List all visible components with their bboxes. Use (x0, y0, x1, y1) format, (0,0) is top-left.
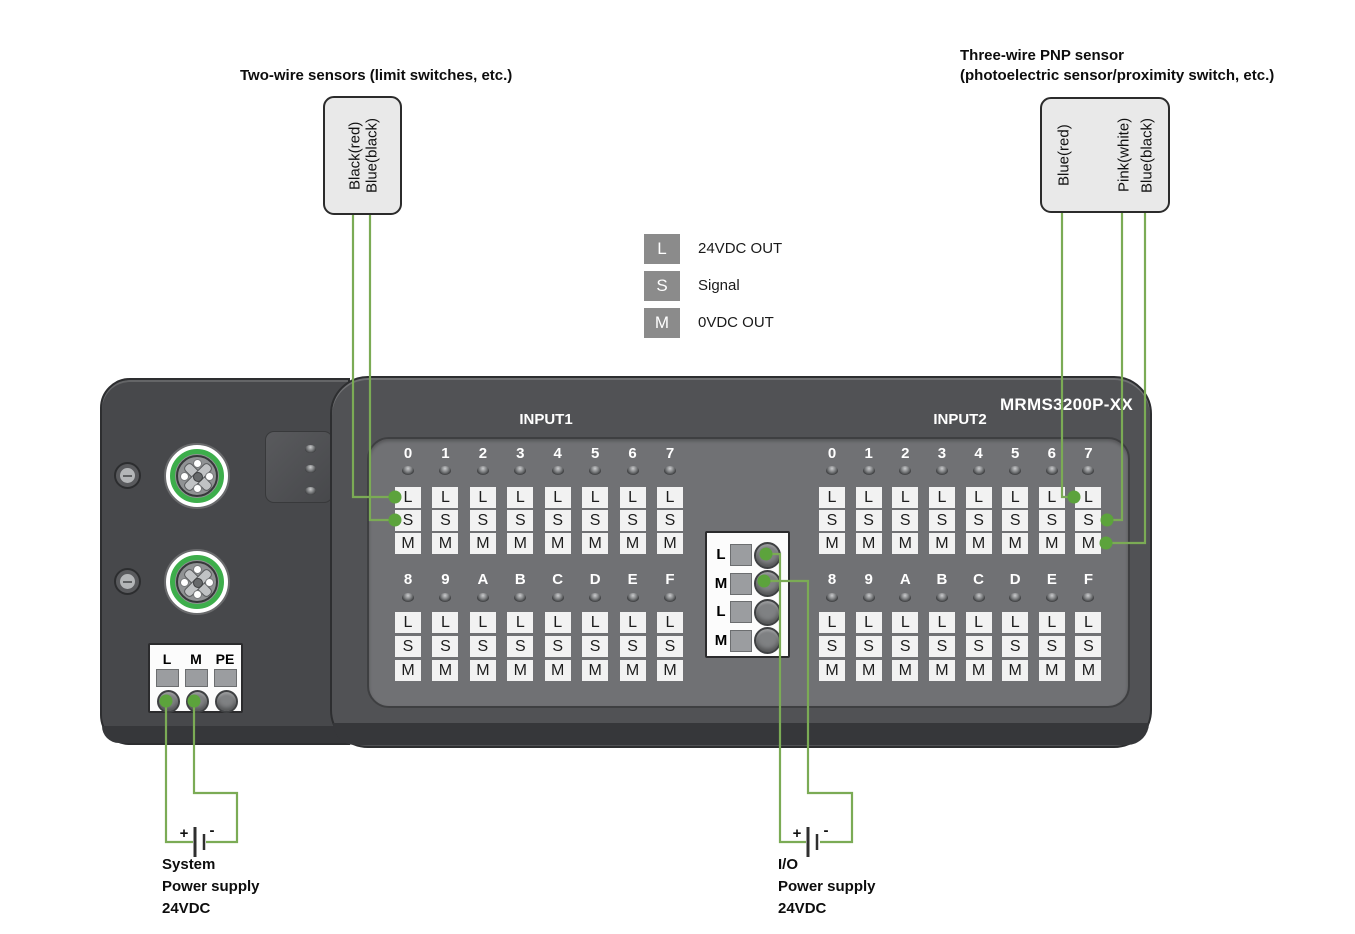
terminal-cell-M: M (657, 533, 683, 554)
terminal-screw (215, 690, 238, 713)
terminal-screw (186, 690, 209, 713)
status-led-icon (305, 465, 316, 473)
channel-led-icon (477, 466, 489, 475)
m12-pin-disc (176, 561, 218, 603)
terminal-cell-M: M (395, 533, 421, 554)
terminal-cell-M: M (470, 660, 496, 681)
terminal-cell-M: M (819, 660, 845, 681)
terminal-cell-L: L (966, 487, 992, 508)
minus-sign-system: - (210, 822, 215, 839)
terminal-cell-L: L (657, 612, 683, 633)
terminal-cell-L: L (395, 612, 421, 633)
status-led-box (265, 431, 333, 503)
terminal-cell-L: L (545, 612, 571, 633)
legend-key-badge: L (644, 234, 680, 264)
channel-number: D (1000, 572, 1030, 588)
terminal-cell-S: S (819, 636, 845, 657)
channel-number: 4 (543, 446, 573, 462)
channel-led-icon (552, 466, 564, 475)
terminal-cell-S: S (1002, 636, 1028, 657)
channel-led-icon (1046, 593, 1058, 602)
terminal-cell-M: M (966, 533, 992, 554)
terminal-cell-S: S (856, 510, 882, 531)
channel-number: A (890, 572, 920, 588)
terminal-cell-S: S (1002, 510, 1028, 531)
status-led-icon (305, 445, 316, 453)
terminal-cell-L: L (620, 612, 646, 633)
terminal-cell-M: M (432, 533, 458, 554)
terminal-cell-S: S (582, 636, 608, 657)
terminal-cell-S: S (395, 636, 421, 657)
legend-key-badge: M (644, 308, 680, 338)
terminal-cell-S: S (620, 510, 646, 531)
terminal-cell-L: L (929, 612, 955, 633)
channel-number: E (1037, 572, 1067, 588)
channel-number: 4 (964, 446, 994, 462)
terminal-cell-M: M (1002, 533, 1028, 554)
terminal-cell-M: M (657, 660, 683, 681)
terminal-cell-M: M (892, 533, 918, 554)
terminal-cell-S: S (929, 636, 955, 657)
m12-pin-hole (205, 472, 214, 481)
screw-slot (123, 475, 132, 478)
m12-pin-hole (180, 578, 189, 587)
terminal-cell-L: L (1002, 487, 1028, 508)
terminal-cell-L: L (470, 612, 496, 633)
m12-pin-hole (193, 590, 202, 599)
terminal-cell-S: S (1039, 636, 1065, 657)
channel-led-icon (936, 593, 948, 602)
system-power-supply-label: System Power supply 24VDC (162, 854, 260, 920)
terminal-cell-L: L (819, 487, 845, 508)
channel-led-icon (863, 593, 875, 602)
terminal-cell-L: L (1039, 612, 1065, 633)
legend-row: L24VDC OUT (644, 234, 844, 264)
legend-key-label: Signal (698, 271, 740, 301)
terminal-cell-L: L (892, 612, 918, 633)
terminal-cell-M: M (856, 660, 882, 681)
terminal-cell-L: L (966, 612, 992, 633)
terminal-cell-L: L (545, 487, 571, 508)
terminal-cell-S: S (657, 636, 683, 657)
plus-sign-io: + (793, 825, 802, 842)
terminal-cell-M: M (929, 660, 955, 681)
channel-number: 2 (890, 446, 920, 462)
terminal-cell-M: M (582, 660, 608, 681)
supply-line: 24VDC (162, 898, 260, 920)
channel-led-icon (826, 593, 838, 602)
channel-number: 6 (618, 446, 648, 462)
channel-number: 7 (655, 446, 685, 462)
io-power-supply-label: I/O Power supply 24VDC (778, 854, 876, 920)
terminal-cell-S: S (1075, 510, 1101, 531)
terminal-cell-S: S (966, 510, 992, 531)
three-wire-title-line1: Three-wire PNP sensor (960, 46, 1274, 66)
channel-number: 5 (580, 446, 610, 462)
power-terminal-label: PE (210, 651, 240, 667)
terminal-screw (754, 542, 781, 569)
terminal-cell-M: M (1039, 533, 1065, 554)
channel-led-icon (973, 593, 985, 602)
terminal-cell-S: S (432, 636, 458, 657)
channel-led-icon (973, 466, 985, 475)
terminal-cell-L: L (507, 487, 533, 508)
channel-number: 1 (854, 446, 884, 462)
terminal-cell-M: M (470, 533, 496, 554)
supply-line: Power supply (778, 876, 876, 898)
two-wire-sensors-title: Two-wire sensors (limit switches, etc.) (240, 66, 512, 86)
terminal-clamp (730, 601, 752, 623)
io-terminal-label: M (711, 575, 731, 592)
terminal-clamp (214, 669, 237, 687)
channel-led-icon (402, 466, 414, 475)
terminal-cell-M: M (819, 533, 845, 554)
channel-led-icon (863, 466, 875, 475)
status-led-icon (305, 487, 316, 495)
m12-pin-hole (193, 565, 202, 574)
terminal-cell-S: S (507, 636, 533, 657)
terminal-cell-L: L (657, 487, 683, 508)
terminal-cell-S: S (545, 636, 571, 657)
terminal-cell-M: M (966, 660, 992, 681)
terminal-clamp (156, 669, 179, 687)
terminal-cell-L: L (470, 487, 496, 508)
terminal-cell-L: L (856, 487, 882, 508)
channel-number: C (543, 572, 573, 588)
terminal-cell-M: M (545, 660, 571, 681)
screw-icon (114, 462, 141, 489)
three-wire-pnp-sensor-title: Three-wire PNP sensor (photoelectric sen… (960, 46, 1274, 86)
legend-key-label: 24VDC OUT (698, 234, 782, 264)
terminal-cell-M: M (545, 533, 571, 554)
terminal-cell-L: L (856, 612, 882, 633)
terminal-cell-M: M (620, 660, 646, 681)
channel-number: 2 (468, 446, 498, 462)
terminal-cell-M: M (432, 660, 458, 681)
power-terminal-label: L (152, 651, 182, 667)
terminal-cell-L: L (1002, 612, 1028, 633)
terminal-cell-S: S (432, 510, 458, 531)
io-terminal-label: L (711, 603, 731, 620)
two-wire-sensor-box: Black(red)Blue(black) (323, 96, 402, 215)
terminal-cell-L: L (582, 487, 608, 508)
terminal-screw (754, 627, 781, 654)
two-wire-pin-label: Blue(black) (362, 98, 382, 213)
channel-led-icon (1046, 466, 1058, 475)
m12-connector-icon (164, 443, 230, 509)
channel-number: 5 (1000, 446, 1030, 462)
channel-number: 9 (854, 572, 884, 588)
input-group-label: INPUT1 (486, 411, 606, 428)
screw-slot (123, 581, 132, 584)
channel-number: 7 (1073, 446, 1103, 462)
screw-icon (114, 568, 141, 595)
legend-row: M0VDC OUT (644, 308, 844, 338)
channel-number: 6 (1037, 446, 1067, 462)
terminal-screw (754, 570, 781, 597)
terminal-cell-M: M (620, 533, 646, 554)
terminal-cell-L: L (620, 487, 646, 508)
channel-led-icon (826, 466, 838, 475)
channel-number: 8 (393, 572, 423, 588)
terminal-cell-M: M (856, 533, 882, 554)
terminal-cell-S: S (1039, 510, 1065, 531)
channel-led-icon (664, 466, 676, 475)
channel-number: F (655, 572, 685, 588)
io-terminal-label: M (711, 632, 731, 649)
channel-number: 3 (927, 446, 957, 462)
terminal-cell-L: L (395, 487, 421, 508)
m12-pin-hole (193, 459, 202, 468)
terminal-cell-M: M (1002, 660, 1028, 681)
minus-sign-io: - (824, 822, 829, 839)
system-power-terminal: LMPE (148, 643, 243, 713)
device-body-bottom-edge (333, 723, 1149, 745)
terminal-cell-S: S (582, 510, 608, 531)
wiring-diagram: Two-wire sensors (limit switches, etc.) … (0, 0, 1355, 934)
channel-led-icon (936, 466, 948, 475)
terminal-cell-L: L (892, 487, 918, 508)
terminal-screw (754, 599, 781, 626)
terminal-clamp (730, 630, 752, 652)
channel-number: B (927, 572, 957, 588)
terminal-cell-S: S (470, 510, 496, 531)
terminal-cell-M: M (1075, 533, 1101, 554)
channel-number: 1 (430, 446, 460, 462)
channel-number: B (505, 572, 535, 588)
terminal-cell-S: S (892, 636, 918, 657)
channel-number: 3 (505, 446, 535, 462)
channel-number: 0 (817, 446, 847, 462)
terminal-cell-L: L (432, 487, 458, 508)
legend-key-label: 0VDC OUT (698, 308, 774, 338)
supply-line: Power supply (162, 876, 260, 898)
m12-connector-icon (164, 549, 230, 615)
terminal-cell-S: S (856, 636, 882, 657)
terminal-cell-S: S (892, 510, 918, 531)
channel-led-icon (627, 593, 639, 602)
terminal-cell-S: S (395, 510, 421, 531)
terminal-cell-M: M (929, 533, 955, 554)
three-wire-sensor-box: Blue(red)Pink(white)Blue(black) (1040, 97, 1170, 213)
three-wire-pin-label: Pink(white) (1114, 99, 1134, 211)
supply-line: 24VDC (778, 898, 876, 920)
terminal-cell-S: S (545, 510, 571, 531)
m12-center-hole (193, 578, 203, 588)
terminal-cell-M: M (582, 533, 608, 554)
terminal-cell-L: L (432, 612, 458, 633)
channel-led-icon (664, 593, 676, 602)
supply-line: System (162, 854, 260, 876)
channel-number: 8 (817, 572, 847, 588)
terminal-clamp (730, 573, 752, 595)
terminal-cell-M: M (507, 660, 533, 681)
m12-pin-hole (193, 484, 202, 493)
terminal-cell-L: L (929, 487, 955, 508)
terminal-cell-S: S (470, 636, 496, 657)
channel-number: C (964, 572, 994, 588)
terminal-cell-M: M (892, 660, 918, 681)
channel-number: 0 (393, 446, 423, 462)
terminal-cell-S: S (966, 636, 992, 657)
three-wire-pin-label: Blue(black) (1137, 99, 1157, 211)
legend-key-badge: S (644, 271, 680, 301)
channel-number: E (618, 572, 648, 588)
channel-number: 9 (430, 572, 460, 588)
channel-number: F (1073, 572, 1103, 588)
terminal-cell-S: S (657, 510, 683, 531)
terminal-cell-S: S (620, 636, 646, 657)
terminal-clamp (185, 669, 208, 687)
legend-row: SSignal (644, 271, 844, 301)
channel-number: D (580, 572, 610, 588)
power-terminal-label: M (181, 651, 211, 667)
terminal-cell-M: M (395, 660, 421, 681)
plus-sign-system: + (180, 825, 189, 842)
terminal-screw (157, 690, 180, 713)
m12-pin-hole (180, 472, 189, 481)
terminal-cell-M: M (1075, 660, 1101, 681)
terminal-cell-S: S (1075, 636, 1101, 657)
m12-pin-hole (205, 578, 214, 587)
terminal-cell-M: M (507, 533, 533, 554)
terminal-cell-S: S (819, 510, 845, 531)
terminal-cell-L: L (1075, 487, 1101, 508)
input-group-label: INPUT2 (900, 411, 1020, 428)
terminal-cell-L: L (507, 612, 533, 633)
channel-led-icon (477, 593, 489, 602)
io-terminal-label: L (711, 546, 731, 563)
three-wire-pin-label: Blue(red) (1054, 99, 1074, 211)
terminal-cell-S: S (929, 510, 955, 531)
supply-line: I/O (778, 854, 876, 876)
three-wire-title-line2: (photoelectric sensor/proximity switch, … (960, 66, 1274, 86)
terminal-cell-L: L (1039, 487, 1065, 508)
m12-center-hole (193, 472, 203, 482)
channel-led-icon (402, 593, 414, 602)
terminal-cell-M: M (1039, 660, 1065, 681)
channel-number: A (468, 572, 498, 588)
channel-led-icon (627, 466, 639, 475)
m12-pin-disc (176, 455, 218, 497)
terminal-cell-L: L (1075, 612, 1101, 633)
io-power-terminal: LMLM (705, 531, 790, 658)
terminal-clamp (730, 544, 752, 566)
terminal-cell-L: L (819, 612, 845, 633)
device-cap-bottom-edge (102, 726, 348, 743)
channel-led-icon (552, 593, 564, 602)
terminal-cell-L: L (582, 612, 608, 633)
terminal-cell-S: S (507, 510, 533, 531)
